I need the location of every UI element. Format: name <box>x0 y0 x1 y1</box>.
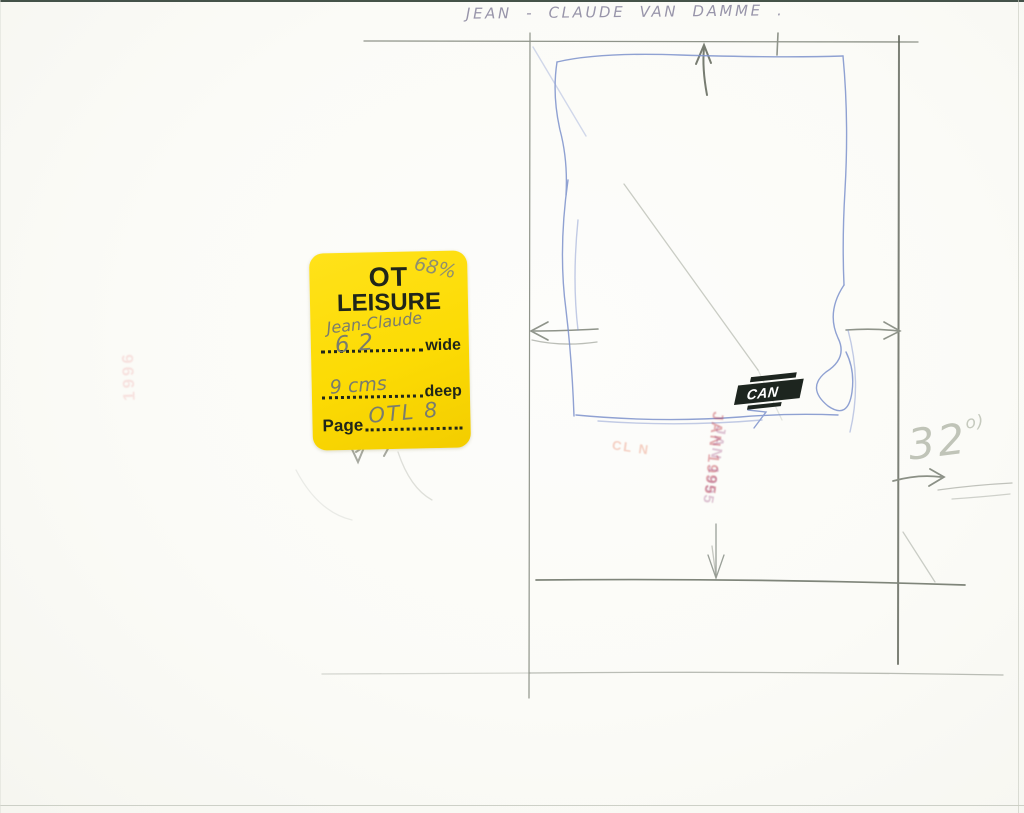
traced-left-edge-echo <box>575 220 578 330</box>
traced-left-edge-a <box>555 62 566 195</box>
page-label: Page <box>322 416 363 437</box>
layout-markings <box>0 0 1024 813</box>
tick-mark-top <box>777 33 778 55</box>
arrow-up-head <box>696 45 711 64</box>
handwritten-width-value: 62 <box>334 329 383 359</box>
arrow-left-head <box>531 322 548 340</box>
traced-right-edge-echo <box>848 330 856 432</box>
crop-line-right <box>898 36 899 664</box>
date-stamp-center: JAN 1995 JAN 1995 <box>701 411 726 512</box>
traced-right-edge-a <box>843 56 847 285</box>
arrow-right-stem <box>846 329 898 331</box>
size-arrow-head <box>929 469 944 486</box>
scan-edge-right <box>1018 0 1019 813</box>
size-underline-1 <box>938 483 1012 490</box>
base-line-left <box>322 673 530 674</box>
pen-markings <box>533 47 856 432</box>
date-stamp-echo: JAN 1995 <box>698 425 730 513</box>
scanned-photo-verso: JEAN - CLAUDE VAN DAMME . OT LEISURE wid… <box>0 0 1024 813</box>
crop-line-bottom <box>536 580 965 585</box>
base-line-right <box>530 672 1003 675</box>
date-stamp-side-marks: CL N <box>611 437 651 457</box>
scan-edge-left <box>0 0 1 813</box>
traced-right-squiggle <box>816 285 852 411</box>
wide-label: wide <box>425 337 461 356</box>
subject-caption: JEAN - CLAUDE VAN DAMME . <box>466 1 785 22</box>
size-annotation-value: 32 <box>905 414 970 470</box>
pen-corner-diagonal <box>533 47 586 136</box>
traced-bottom-echo <box>598 420 762 424</box>
corner-diagonal <box>903 532 935 582</box>
handwritten-depth-value: 9 cms <box>329 373 387 399</box>
date-stamp-left: 1996 <box>118 351 140 401</box>
press-agency-label: CAN <box>734 371 809 414</box>
scan-edge-top <box>0 0 1024 2</box>
arrow-right-head <box>884 322 900 339</box>
crop-line-left <box>529 33 530 698</box>
arrow-left-echo <box>532 340 597 344</box>
arrow-down-echo <box>712 546 716 577</box>
size-arrow-stem <box>893 476 941 481</box>
arrow-down-head <box>708 555 724 578</box>
faint-arc-under-sticker <box>398 452 432 500</box>
label-text: CAN <box>735 383 779 404</box>
size-underline-2 <box>952 494 1010 499</box>
traced-left-edge-b <box>562 180 574 416</box>
inner-diagonal <box>624 184 758 370</box>
label-body: CAN <box>734 379 804 405</box>
traced-top-edge <box>557 54 843 62</box>
scan-edge-bottom <box>0 805 1024 806</box>
date-stamp-text: JAN 1995 <box>698 411 726 512</box>
faint-arc-left <box>296 470 352 520</box>
crop-line-top <box>364 41 918 42</box>
handwritten-size-annotation: 32o) <box>905 411 989 469</box>
arrow-left-stem <box>534 329 598 331</box>
arrow-up-stem <box>703 48 707 95</box>
label-stripe-bottom <box>747 402 782 410</box>
traced-bottom-edge <box>576 414 838 419</box>
size-annotation-suffix: o) <box>964 411 985 433</box>
